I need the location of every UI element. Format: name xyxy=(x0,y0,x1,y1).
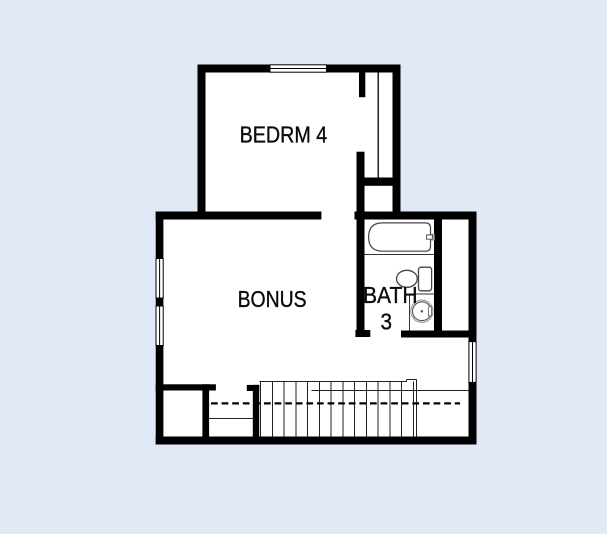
svg-text:3: 3 xyxy=(381,308,393,334)
svg-text:BEDRM 4: BEDRM 4 xyxy=(240,122,328,148)
svg-text:BATH: BATH xyxy=(363,282,418,308)
svg-text:BONUS: BONUS xyxy=(238,286,307,312)
